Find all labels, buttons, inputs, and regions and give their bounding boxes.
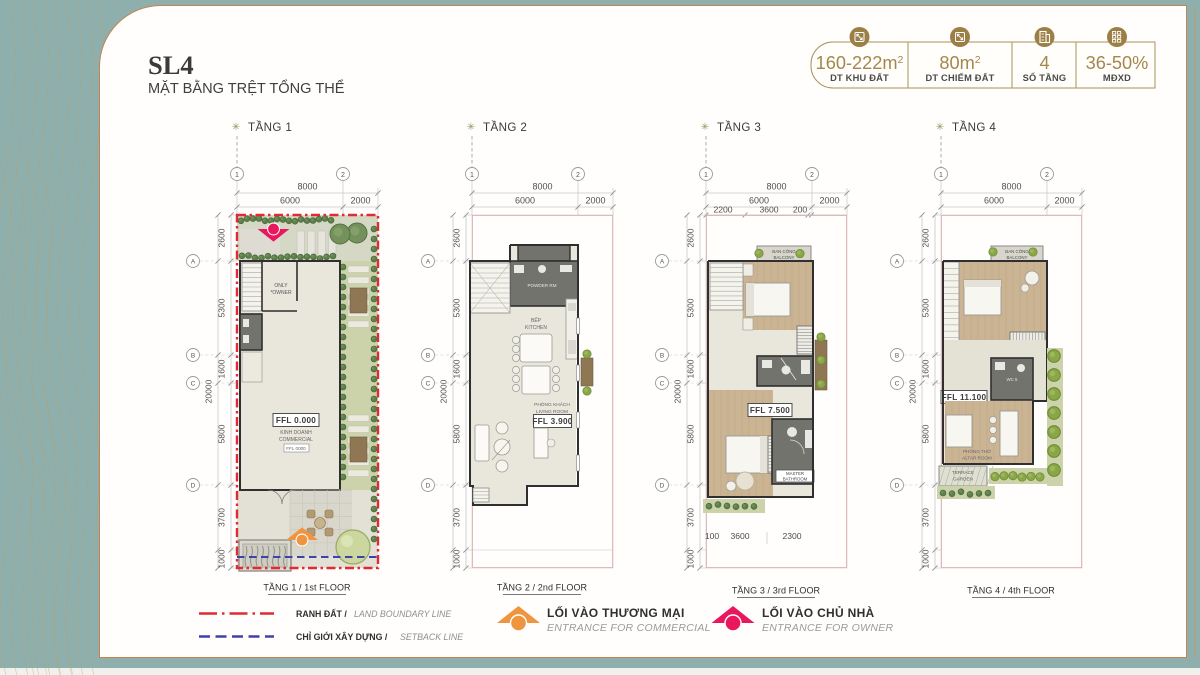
svg-text:TẦNG 3: TẦNG 3	[717, 121, 761, 134]
svg-text:✳: ✳	[701, 122, 709, 133]
svg-text:BAN CÔNG: BAN CÔNG	[1005, 249, 1029, 254]
svg-text:ALTAR ROOM: ALTAR ROOM	[962, 456, 992, 461]
svg-text:DT KHU ĐẤT: DT KHU ĐẤT	[830, 73, 889, 83]
svg-text:160-222m2: 160-222m2	[816, 53, 904, 73]
svg-text:80m2: 80m2	[939, 53, 980, 73]
svg-text:KITCHEN: KITCHEN	[525, 325, 547, 331]
svg-text:TẦNG 2: TẦNG 2	[483, 121, 527, 134]
svg-text:✳: ✳	[467, 122, 475, 133]
svg-text:MẶT BẰNG TRỆT TỔNG THỂ: MẶT BẰNG TRỆT TỔNG THỂ	[148, 79, 345, 97]
svg-text:100: 100	[705, 531, 720, 541]
svg-text:36-50%: 36-50%	[1086, 53, 1149, 73]
svg-text:PHÒNG THỜ: PHÒNG THỜ	[963, 448, 991, 454]
svg-text:✳: ✳	[232, 122, 240, 133]
svg-text:LỐI VÀO CHỦ NHÀ: LỐI VÀO CHỦ NHÀ	[762, 605, 875, 620]
svg-text:SL4: SL4	[148, 50, 194, 80]
svg-text:RANH ĐẤT /: RANH ĐẤT /	[296, 609, 347, 619]
svg-text:FFL 11.100: FFL 11.100	[942, 393, 987, 402]
svg-text:BẾP: BẾP	[531, 317, 542, 324]
svg-text:DT CHIẾM ĐẤT: DT CHIẾM ĐẤT	[925, 73, 994, 83]
svg-text:ENTRANCE FOR OWNER: ENTRANCE FOR OWNER	[762, 622, 894, 634]
svg-text:2300: 2300	[782, 531, 801, 541]
svg-text:CHỈ GIỚI XÂY DỰNG /: CHỈ GIỚI XÂY DỰNG /	[296, 631, 388, 642]
svg-text:KINH DOANH: KINH DOANH	[280, 430, 312, 436]
svg-text:TẦNG 1: TẦNG 1	[248, 121, 292, 134]
svg-text:FFL 0.000: FFL 0.000	[276, 416, 316, 425]
svg-text:TẦNG 3 / 3rd FLOOR: TẦNG 3 / 3rd FLOOR	[732, 586, 821, 596]
svg-text:WC 5: WC 5	[1007, 377, 1019, 382]
svg-text:COMMERCIAL: COMMERCIAL	[279, 437, 313, 443]
svg-text:TERRACE: TERRACE	[952, 470, 974, 475]
svg-text:3600: 3600	[730, 531, 749, 541]
svg-text:4: 4	[1039, 53, 1049, 73]
svg-text:SỐ TẦNG: SỐ TẦNG	[1023, 72, 1067, 83]
svg-text:TẦNG 1 / 1st FLOOR: TẦNG 1 / 1st FLOOR	[263, 583, 351, 593]
svg-text:BALCONY: BALCONY	[774, 255, 795, 260]
svg-text:MĐXD: MĐXD	[1103, 73, 1131, 83]
svg-text:3600: 3600	[759, 205, 778, 215]
svg-text:TẦNG 2 / 2nd FLOOR: TẦNG 2 / 2nd FLOOR	[497, 583, 588, 593]
svg-text:TẦNG 4 / 4th FLOOR: TẦNG 4 / 4th FLOOR	[967, 586, 1055, 596]
svg-text:FFL 3.900: FFL 3.900	[532, 417, 572, 426]
svg-text:GARDEN: GARDEN	[953, 477, 973, 482]
svg-text:ENTRANCE FOR COMMERCIAL: ENTRANCE FOR COMMERCIAL	[547, 622, 711, 634]
svg-text:FFL 7.500: FFL 7.500	[750, 406, 790, 415]
svg-text:200: 200	[793, 205, 808, 215]
svg-text:BATHROOM: BATHROOM	[783, 476, 808, 481]
svg-text:✳: ✳	[936, 122, 944, 133]
svg-text:BAN CÔNG: BAN CÔNG	[772, 249, 796, 254]
svg-text:TẦNG 4: TẦNG 4	[952, 121, 996, 134]
svg-text:FFL 0000: FFL 0000	[286, 446, 306, 451]
svg-text:2200: 2200	[713, 205, 732, 215]
svg-text:POWDER RM: POWDER RM	[527, 283, 556, 288]
svg-text:MASTER: MASTER	[786, 471, 804, 476]
svg-text:*OWNER: *OWNER	[270, 290, 292, 296]
svg-text:LAND BOUNDARY LINE: LAND BOUNDARY LINE	[354, 609, 451, 619]
svg-text:BALCONY: BALCONY	[1007, 255, 1028, 260]
svg-text:LỐI VÀO THƯƠNG MẠI: LỐI VÀO THƯƠNG MẠI	[547, 605, 685, 620]
svg-text:SETBACK LINE: SETBACK LINE	[400, 632, 463, 642]
svg-text:ONLY: ONLY	[274, 283, 288, 289]
svg-text:PHÒNG KHÁCH: PHÒNG KHÁCH	[534, 401, 570, 408]
